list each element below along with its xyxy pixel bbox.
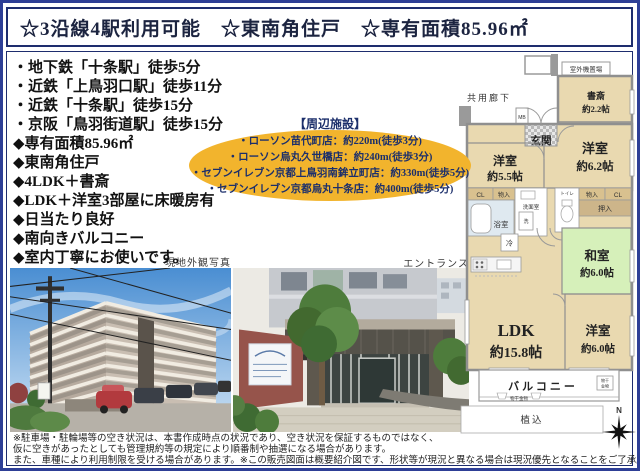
window [441,282,449,288]
page-title: ☆3沿線4駅利用可能 ☆東南角住戸 ☆専有面積85.96㎡ [20,14,529,41]
study-size: 約2.2帖 [582,104,610,114]
entrance-photo [233,268,469,432]
sink [497,260,511,269]
pole-crossarm [36,286,64,290]
floor-band [269,295,437,299]
site-sign [38,383,50,399]
disclaimer-line: 仮に空きがあったとしても管理規約等の規定により順番制や抽選になる場合があります。 [13,445,623,456]
japanese-room-size: 約6.0帖 [580,266,615,279]
feature-item: ◆4LDK＋書斎 [13,173,228,192]
feature-item: ・近鉄「十条駅」徒歩15分 [13,97,228,116]
feature-item: ◆日当たり良好 [13,211,228,230]
fridge-label: 冷 [506,239,513,248]
nearby-item: ・ローソン烏丸久世橋店：約240m(徒歩3分) [228,150,433,166]
dark-car [134,388,164,403]
feature-item: ◆南向きバルコニー [13,230,228,249]
feature-item: ・地下鉄「十条駅」徒歩5分 [13,59,228,78]
window [441,293,449,299]
feature-item: ◆LDK＋洋室3部屋に床暖房有 [13,192,228,211]
basin [521,191,535,199]
closet-label: CL [476,192,485,199]
japanese-room-label: 和室 [583,248,610,263]
utility-pole [48,276,52,424]
nearby-item: ・ローソン苗代町店：約220m(徒歩3分) [238,134,422,150]
flyer-page: ☆3沿線4駅利用可能 ☆東南角住戸 ☆専有面積85.96㎡ ・地下鉄「十条駅」徒… [0,0,640,471]
laundry-fixture-line2: 金物 [601,383,609,389]
header-box: ☆3沿線4駅利用可能 ☆東南角住戸 ☆専有面積85.96㎡ [6,7,633,47]
burner [476,266,479,269]
laundry-label: 物干金物 [510,395,528,402]
laundry-bracket [531,393,541,399]
storage-label: 物入 [586,191,598,199]
exterior-photo [10,268,231,432]
burner [481,261,484,264]
study-label: 書斎 [587,90,605,101]
tree [301,325,337,362]
corridor-label: 共用廊下 [467,92,511,103]
bedroom1-size: 約5.5帖 [487,169,523,183]
corridor-alcove [525,56,551,74]
feature-item: ◆室内丁寧にお使いです。 [13,249,228,268]
feature-item: ◆専有面積85.96㎡ [13,135,228,154]
burner [476,261,479,264]
floorplan: 共用廊下 室外機置場 MB 玄関 書斎 約2.2帖 洋室 約6.2帖 洋室 約5… [459,54,640,466]
disclaimer: ※駐車場・駐輪場等の空き状況は、本書作成時点の状況であり、空き状況を保証するもの… [13,434,623,466]
bedroom3-size: 約6.0帖 [581,342,616,355]
north-label: N [616,406,622,415]
ldk-label: LDK [498,321,536,340]
closet-label: CL [614,192,623,199]
entrance-photo-image [233,268,469,432]
window [281,272,307,290]
dark-car [218,381,231,392]
dark-car [194,383,218,395]
burner [481,266,484,269]
wheel [120,405,128,413]
bedroom1-label: 洋室 [493,153,517,168]
feature-item: ・近鉄「上鳥羽口駅」徒歩11分 [13,78,228,97]
stove [473,259,487,270]
window [383,274,407,288]
bedroom2-label: 洋室 [582,141,608,156]
washroom-label: 洗面室 [523,203,540,211]
mb-label: MB [518,115,526,121]
feature-item: ◆東南角住戸 [13,154,228,173]
window [349,272,377,288]
hedge [30,412,70,433]
laundry-bracket [497,393,507,399]
ldk-size: 約15.8帖 [490,344,543,361]
disclaimer-line: また、車種により利用制限を受ける場合があります。※この販売図面は概要紹介図です、… [13,456,623,467]
toilet-label: トイレ [560,191,574,196]
laundry-fixture-line1: 物干 [601,377,609,383]
wheel [100,405,108,413]
exterior-photo-image [10,268,231,432]
bedroom3-label: 洋室 [585,323,611,338]
balcony-label: バルコニー [508,380,578,393]
washer-label: 洗 [523,218,528,225]
toilet-bowl [561,206,573,222]
feature-list: ・地下鉄「十条駅」徒歩5分 ・近鉄「上鳥羽口駅」徒歩11分 ・近鉄「十条駅」徒歩… [13,59,228,268]
nearby-item: ・セブンイレブン京都上鳥羽南鉾立町店：約330m(徒歩5分) [191,166,469,182]
bedroom2-size: 約6.2帖 [576,159,614,173]
toilet-tank [562,200,572,206]
storage-label: 物入 [498,191,510,199]
feature-item: ・京阪「鳥羽街道駅」徒歩15分 [13,116,228,135]
nearby-facilities-oval: ・ローソン苗代町店：約220m(徒歩3分) ・ローソン烏丸久世橋店：約240m(… [189,130,471,201]
planting-label: 植込 [520,414,543,426]
outdoor-unit-label: 室外機置場 [570,65,603,74]
bath-label: 浴室 [494,219,509,229]
dark-car [166,385,192,398]
oshiire-label: 押入 [598,204,612,213]
entrance-label: 玄関 [531,134,552,147]
wall-segment [551,54,558,76]
nearby-item: ・セブンイレブン京都烏丸十条店：約400m(徒歩5分) [207,182,454,198]
red-car [96,391,132,408]
floorplan-drawing: 共用廊下 室外機置場 MB 玄関 書斎 約2.2帖 洋室 約6.2帖 洋室 約5… [459,54,640,466]
bathtub [471,204,491,233]
